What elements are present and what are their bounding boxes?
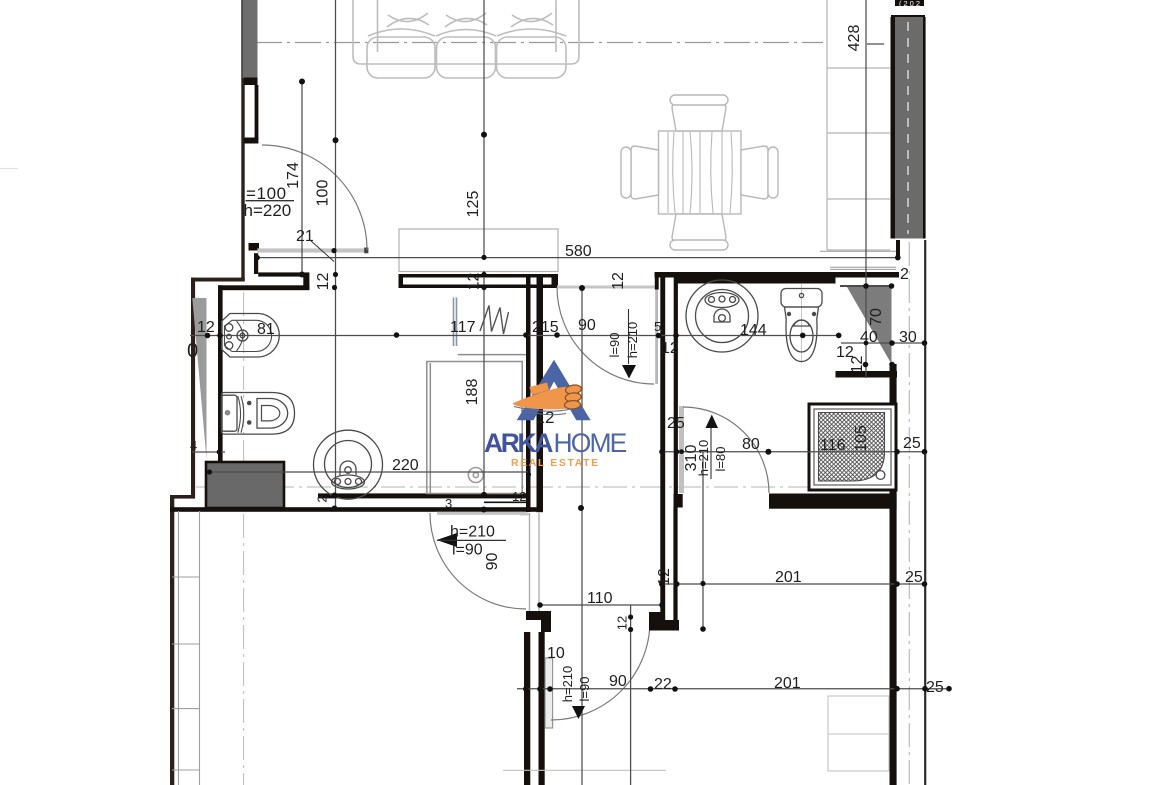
svg-text:12: 12 [315, 273, 332, 291]
svg-text:201: 201 [774, 675, 801, 692]
svg-text:ARKA: ARKA [484, 428, 553, 458]
svg-text:HOME: HOME [554, 428, 627, 458]
svg-text:22: 22 [654, 676, 672, 693]
svg-text:90: 90 [609, 673, 627, 690]
svg-text:3: 3 [445, 496, 452, 511]
svg-text:12: 12 [466, 273, 483, 291]
svg-text:h=210: h=210 [450, 524, 495, 541]
svg-text:l=80: l=80 [713, 447, 728, 472]
svg-text:4: 4 [190, 438, 197, 453]
svg-text:21: 21 [296, 228, 314, 245]
svg-text:30: 30 [899, 329, 917, 346]
svg-text:h=210: h=210 [625, 322, 640, 359]
svg-text:12: 12 [656, 568, 673, 586]
svg-text:215: 215 [532, 319, 559, 336]
svg-text:116: 116 [820, 437, 846, 454]
svg-text:220: 220 [392, 457, 419, 474]
svg-text:l=90: l=90 [607, 333, 622, 358]
svg-text:10: 10 [547, 645, 565, 662]
svg-text:5: 5 [654, 319, 661, 334]
svg-text:12: 12 [615, 616, 630, 630]
svg-text:144: 144 [740, 322, 767, 339]
svg-text:l=90: l=90 [577, 677, 592, 702]
svg-text:2: 2 [900, 266, 909, 283]
svg-text:201: 201 [775, 569, 802, 586]
svg-text:70: 70 [868, 308, 885, 326]
svg-text:81: 81 [257, 321, 275, 338]
svg-text:REAL ESTATE: REAL ESTATE [511, 457, 600, 469]
svg-text:80: 80 [742, 436, 760, 453]
svg-text:428: 428 [846, 25, 863, 52]
svg-text:h=210: h=210 [696, 440, 711, 477]
svg-text:188: 188 [464, 379, 481, 406]
svg-text:12: 12 [849, 356, 866, 374]
svg-text:25: 25 [926, 679, 944, 696]
svg-text:25: 25 [905, 569, 923, 586]
svg-text:12: 12 [610, 272, 627, 290]
svg-text:105: 105 [853, 425, 870, 452]
svg-text:25: 25 [903, 435, 921, 452]
svg-text:580: 580 [565, 243, 592, 260]
svg-text:100: 100 [315, 180, 332, 207]
svg-text:125: 125 [465, 191, 482, 218]
svg-text:12: 12 [661, 340, 679, 357]
svg-text:25: 25 [667, 415, 685, 432]
svg-text:2: 2 [315, 495, 330, 502]
svg-text:h=220: h=220 [244, 201, 292, 220]
svg-text:117: 117 [450, 319, 476, 336]
svg-text:l=90: l=90 [452, 542, 483, 559]
svg-text:h=210: h=210 [560, 666, 575, 703]
svg-text:40: 40 [860, 329, 878, 346]
svg-text:12: 12 [512, 489, 526, 504]
svg-text:12: 12 [197, 319, 215, 336]
svg-text:90: 90 [578, 317, 596, 334]
svg-text:90: 90 [484, 553, 501, 571]
svg-text:0: 0 [187, 340, 198, 362]
svg-text:110: 110 [587, 590, 613, 607]
svg-text:174: 174 [285, 162, 302, 189]
